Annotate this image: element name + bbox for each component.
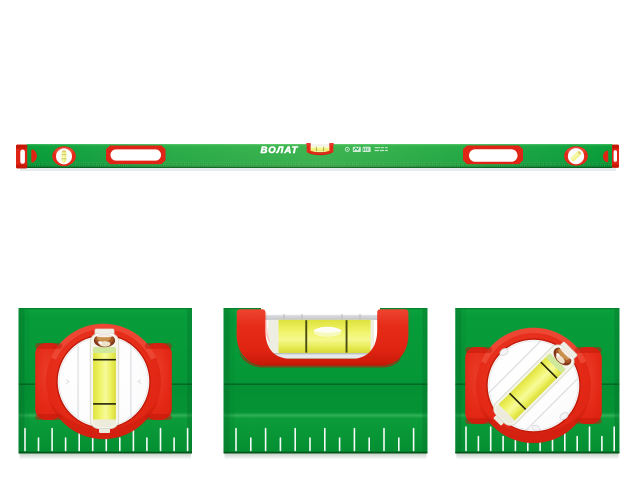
svg-text:ВОЛАТ: ВОЛАТ [261, 145, 299, 156]
